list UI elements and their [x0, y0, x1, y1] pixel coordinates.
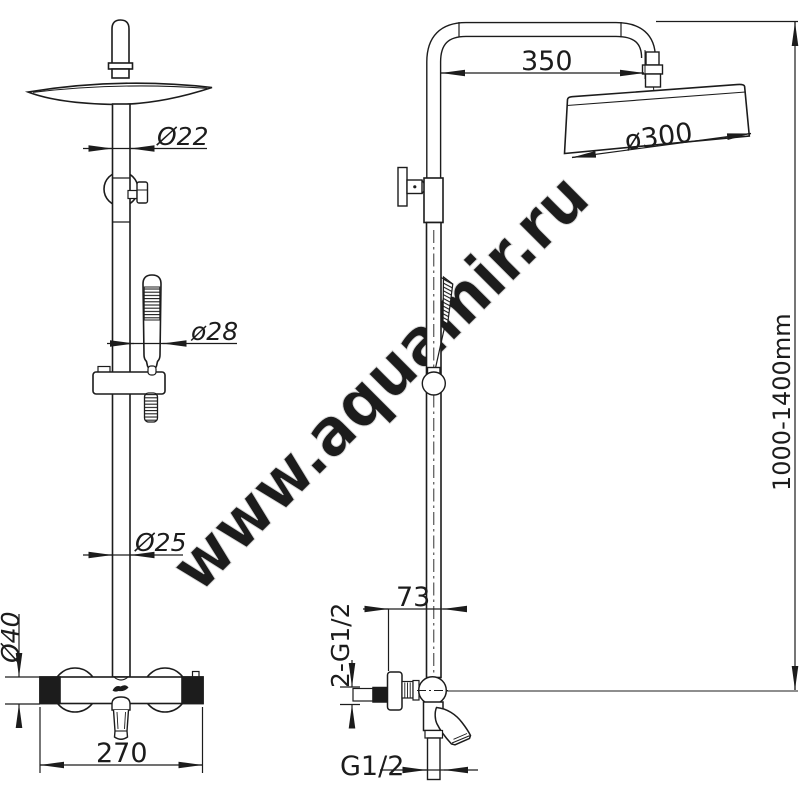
dim-label-outlet-g12: G1/2: [340, 751, 404, 782]
wall-flange: [388, 672, 403, 710]
wall-bracket-side: [398, 168, 426, 207]
dim-label-riser-25: Ø25: [134, 528, 187, 557]
hand-shower-front: [143, 275, 161, 375]
dim-label-arm-350: 350: [521, 46, 573, 77]
dim-wall-73: [363, 609, 463, 671]
watermark-text: www.aquamir.ru: [156, 158, 604, 606]
bottom-outlet-pipe: [428, 738, 441, 780]
dim-label-height-range: 1000-1400mm: [768, 313, 796, 491]
clamp-screw: [145, 393, 158, 422]
rail-sleeve-side: [424, 178, 443, 223]
mixer-cap-right: [182, 677, 203, 704]
dim-label-body-270: 270: [96, 738, 148, 769]
overhead-shower-front: [28, 83, 212, 104]
dim-label-inlets-2xg12: 2-G1/2: [326, 603, 355, 688]
shower-system-drawing: www.aquamir.ru: [0, 0, 800, 800]
dim-label-pipe-22: Ø22: [156, 122, 209, 151]
dim-label-body-40: Ø40: [0, 612, 25, 665]
technical-drawing-canvas: www.aquamir.ru: [0, 0, 800, 800]
thermostatic-mixer-front: [40, 668, 203, 739]
wall-inlet-fitting: [373, 688, 388, 703]
dim-label-wall-73: 73: [396, 582, 430, 613]
top-post: [109, 20, 133, 78]
dim-label-handshower-28: ø28: [190, 317, 238, 346]
mixer-spout-front: [112, 697, 130, 739]
mixer-cap-left: [40, 677, 60, 704]
